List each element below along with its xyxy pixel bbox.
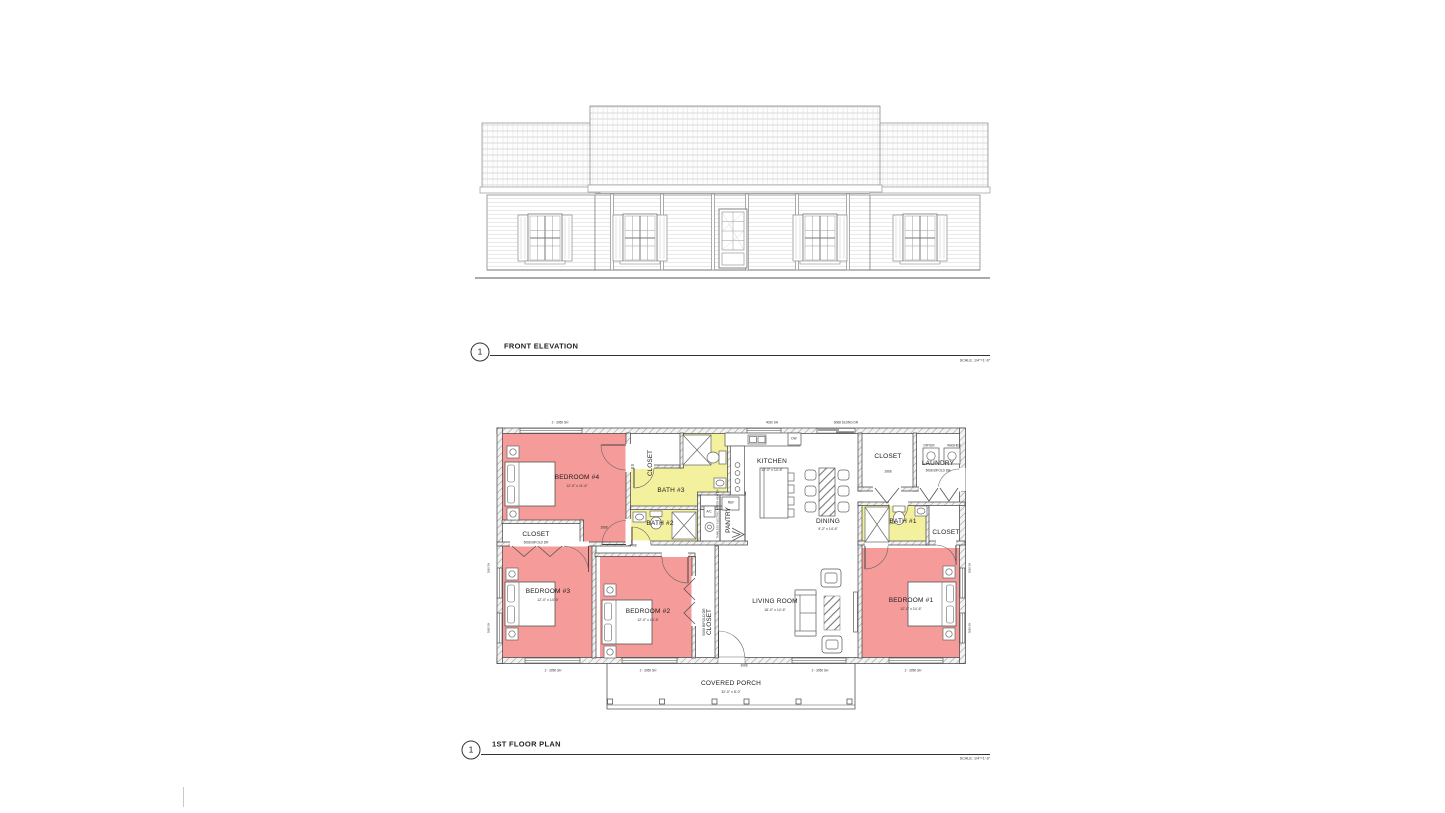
tag-window-bed1: 2 - 3050 SH bbox=[905, 669, 922, 672]
tag-window-left-lower: 3050 SH bbox=[488, 623, 491, 633]
label-water-heater: TANKLESS ELECTRIC WATER HEATER bbox=[717, 490, 720, 539]
elevation-roof-right bbox=[870, 123, 990, 193]
label-kitchen: KITCHEN bbox=[757, 459, 787, 466]
tag-window-left-upper: 3050 SH bbox=[488, 563, 491, 573]
elevation-front-door bbox=[719, 209, 747, 268]
label-bed1-closet: CLOSET bbox=[932, 530, 959, 537]
label-porch: COVERED PORCH bbox=[701, 681, 761, 688]
label-bed2-closet: CLOSET bbox=[707, 609, 714, 635]
label-bath2: BATH #2 bbox=[646, 521, 673, 528]
label-laundry-door: 5068 BIFOLD DR bbox=[926, 469, 951, 472]
elevation-view-title: FRONT ELEVATION bbox=[504, 342, 578, 351]
label-bed4-closet-door: 5068 BIFOLD DR bbox=[524, 541, 549, 544]
tag-window-right-lower: 3050 SH bbox=[969, 623, 972, 633]
plan-title-rule bbox=[481, 754, 990, 755]
label-bedroom2: BEDROOM #2 bbox=[626, 609, 671, 616]
tag-window-living: 2 - 3050 SH bbox=[812, 669, 829, 672]
label-bedroom2-dims: 12'-0" x 14'-6" bbox=[637, 618, 659, 622]
label-fridge: REF bbox=[728, 501, 734, 504]
label-bed4-closet: CLOSET bbox=[522, 532, 549, 539]
label-bath1: BATH #1 bbox=[889, 519, 916, 526]
elevation-roof-left bbox=[480, 123, 600, 193]
label-ac-unit: A/C bbox=[706, 510, 711, 513]
label-dining: DINING bbox=[816, 518, 840, 525]
tag-front-door: 3068 bbox=[740, 664, 747, 667]
label-bedroom4: BEDROOM #4 bbox=[555, 475, 600, 482]
elevation-title-rule bbox=[490, 355, 990, 356]
tag-window-bed2: 2 - 3050 SH bbox=[640, 669, 657, 672]
label-bedroom1: BEDROOM #1 bbox=[889, 598, 934, 605]
plan-scale-note: SCALE: 1/4"=1'-0" bbox=[959, 756, 990, 761]
tag-window-top-left: 2 - 3050 SH bbox=[552, 421, 569, 424]
label-dishwasher: DW bbox=[791, 437, 796, 440]
tag-bath-door: 2468 bbox=[629, 544, 636, 547]
label-living-room-dims: 18'-0" x 14'-6" bbox=[764, 608, 786, 612]
elevation-roof-center bbox=[588, 106, 882, 192]
label-laundry: LAUNDRY bbox=[922, 461, 954, 468]
label-dining-dims: 9'-2" x 14'-6" bbox=[818, 527, 838, 531]
label-kitchen-dims: 12'-0" x 14'-6" bbox=[761, 468, 783, 472]
floor-plan-drawing bbox=[492, 420, 972, 720]
label-bath3: BATH #3 bbox=[657, 488, 684, 495]
plot-crop-mark bbox=[183, 787, 184, 807]
tag-window-bed3: 2 - 3050 SH bbox=[545, 669, 562, 672]
tag-window-kitchen: 4030 SH bbox=[766, 421, 778, 424]
label-pantry: PANTRY bbox=[726, 507, 733, 533]
label-bedroom4-dims: 12'-0" x 11'-6" bbox=[566, 484, 587, 488]
label-porch-dims: 32'-0" x 8'-0" bbox=[721, 690, 741, 694]
label-bed2-closet-door: 5068 BIFOLD DR bbox=[702, 608, 706, 635]
tag-sliding-door: 6068 SLDNG DR bbox=[834, 421, 858, 424]
label-dryer: DRYER bbox=[924, 444, 935, 447]
label-bedroom3-dims: 12'-0" x 14'-6" bbox=[537, 598, 559, 602]
label-bedroom1-dims: 12'-0" x 14'-6" bbox=[900, 607, 922, 611]
elevation-view-number: 1 bbox=[471, 342, 490, 361]
tag-bedroom-door: 2668 bbox=[600, 526, 607, 529]
label-washer: WASHER bbox=[947, 444, 961, 447]
tag-window-right-upper: 3050 SH bbox=[969, 563, 972, 573]
label-living-room: LIVING ROOM bbox=[752, 599, 798, 606]
plan-view-number: 1 bbox=[462, 740, 481, 759]
label-entry-closet-door-tag: 2868 bbox=[884, 470, 891, 473]
drawing-sheet: 1 FRONT ELEVATION SCALE: 1/4"=1'-0" bbox=[0, 0, 1445, 813]
label-hall-closet: CLOSET bbox=[648, 450, 655, 476]
front-elevation-drawing bbox=[470, 95, 1000, 285]
plan-view-title: 1ST FLOOR PLAN bbox=[492, 739, 561, 748]
label-bedroom3: BEDROOM #3 bbox=[526, 589, 571, 596]
label-entry-closet: CLOSET bbox=[874, 454, 901, 461]
elevation-scale-note: SCALE: 1/4"=1'-0" bbox=[959, 358, 990, 363]
